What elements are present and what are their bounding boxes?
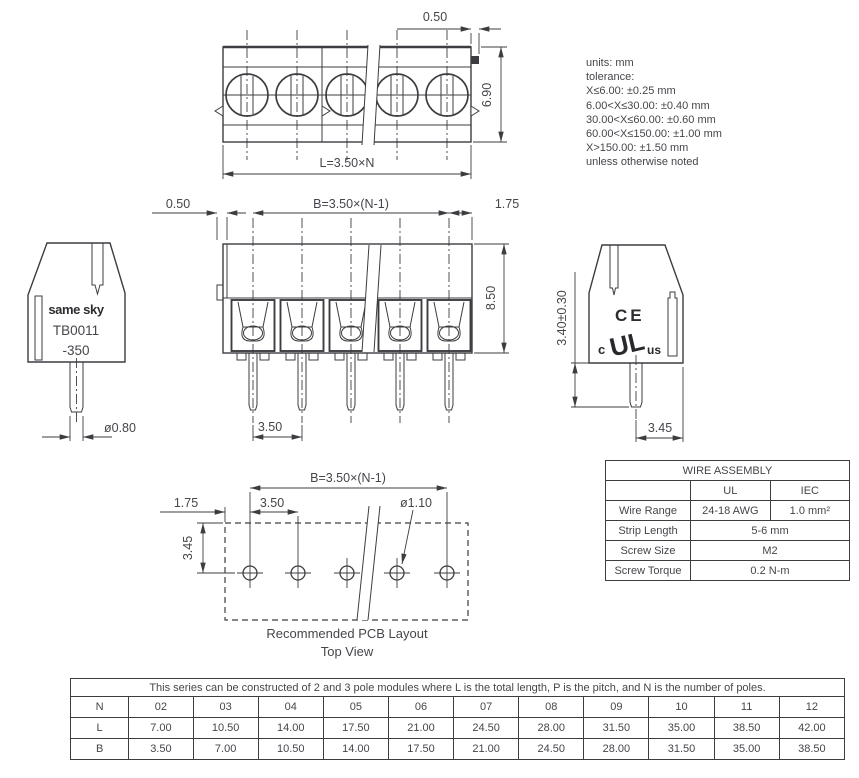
cell: 3.50 <box>129 739 193 760</box>
cell: 03 <box>193 697 258 718</box>
cell: 38.50 <box>779 739 844 760</box>
ul-mark-c: c <box>598 342 605 357</box>
dim-total-length: L=3.50×N <box>320 156 375 170</box>
cell: 11 <box>714 697 779 718</box>
screw-size-value: M2 <box>690 541 849 561</box>
cell: 24.50 <box>519 739 584 760</box>
solder-tab <box>471 56 479 64</box>
cell: 17.50 <box>323 718 388 739</box>
dim-tab-offset: 0.50 <box>423 10 447 24</box>
cell: 10.50 <box>193 718 258 739</box>
cell: 31.50 <box>584 718 649 739</box>
row-label: B <box>71 739 129 760</box>
dim-row-offset: 3.45 <box>181 536 195 560</box>
wire-range-ul: 24-18 AWG <box>690 501 770 521</box>
cell: 35.00 <box>714 739 779 760</box>
datasheet-sheet: { "drawing": { "notes": [ "units: mm", "… <box>0 0 859 778</box>
row-label: L <box>71 718 129 739</box>
note-line: unless otherwise noted <box>586 155 722 169</box>
side-view-right-drawing: CE c UL us 3.40±0.30 3.45 <box>545 228 730 458</box>
wire-table-title: WIRE ASSEMBLY <box>606 461 850 481</box>
dim-pole-span: B=3.50×(N-1) <box>310 471 386 485</box>
row-label: Wire Range <box>606 501 691 521</box>
pin <box>70 358 83 425</box>
pin-diameter-dimension: ø0.80 <box>42 416 136 441</box>
dim-pitch: 3.50 <box>258 420 282 434</box>
pcb-outline <box>225 523 468 620</box>
row-label: Strip Length <box>606 521 691 541</box>
dim-edge-offset: 1.75 <box>174 496 198 510</box>
dim-pole-span: B=3.50×(N-1) <box>313 197 389 211</box>
cell: 21.00 <box>388 718 453 739</box>
note-line: X>150.00: ±1.50 mm <box>586 141 722 155</box>
cell: 10 <box>649 697 714 718</box>
dim-height: 8.50 <box>484 286 498 310</box>
brand-logo: same sky <box>48 302 105 317</box>
cell: 07 <box>454 697 519 718</box>
dim-rear-offset: 3.45 <box>648 421 672 435</box>
cell: 28.00 <box>519 718 584 739</box>
note-line: units: mm <box>586 56 722 70</box>
dim-pitch: 3.50 <box>260 496 284 510</box>
dim-left-offset: 0.50 <box>166 197 190 211</box>
poles-table-caption: This series can be constructed of 2 and … <box>71 679 845 697</box>
cell: 17.50 <box>388 739 453 760</box>
ce-mark: CE <box>615 306 645 325</box>
cell: 10.50 <box>258 739 323 760</box>
ul-mark-us: us <box>647 343 661 357</box>
ul-mark-letters: UL <box>607 325 648 362</box>
note-line: tolerance: <box>586 70 722 84</box>
screw-torque-value: 0.2 N-m <box>690 561 849 581</box>
cell: 05 <box>323 697 388 718</box>
cell: 7.00 <box>129 718 193 739</box>
note-line: 30.00<X≤60.00: ±0.60 mm <box>586 113 722 127</box>
cell: 7.00 <box>193 739 258 760</box>
cell: 35.00 <box>649 718 714 739</box>
rear-offset-dimension: 3.45 <box>636 367 683 442</box>
cell: 02 <box>129 697 193 718</box>
drill-holes <box>237 566 460 580</box>
cell: 09 <box>584 697 649 718</box>
cell: 08 <box>519 697 584 718</box>
front-view-body <box>217 244 472 353</box>
top-view-drawing: 0.50 6.90 L=3.50×N <box>195 2 515 187</box>
note-line: 6.00<X≤30.00: ±0.40 mm <box>586 99 722 113</box>
wire-table-col-iec: IEC <box>770 481 849 501</box>
row-label: Screw Size <box>606 541 691 561</box>
wire-table-col-ul: UL <box>690 481 770 501</box>
table-row: B 3.50 7.00 10.50 14.00 17.50 21.00 24.5… <box>71 739 845 760</box>
table-row: Screw Size M2 <box>606 541 850 561</box>
tolerance-note: units: mm tolerance: X≤6.00: ±0.25 mm 6.… <box>586 56 722 170</box>
cell: 38.50 <box>714 718 779 739</box>
cell: 42.00 <box>779 718 844 739</box>
table-row: Wire Range 24-18 AWG 1.0 mm² <box>606 501 850 521</box>
cell: 21.00 <box>454 739 519 760</box>
pcb-layout-drawing: B=3.50×(N-1) 1.75 3.50 ø1.10 3.45 Recomm… <box>150 462 520 672</box>
row-label: N <box>71 697 129 718</box>
cell: 04 <box>258 697 323 718</box>
dim-depth: 6.90 <box>480 83 494 107</box>
pin <box>630 355 642 420</box>
pcb-dimensions: B=3.50×(N-1) 1.75 3.50 ø1.10 3.45 <box>160 471 447 573</box>
cell: 06 <box>388 697 453 718</box>
pcb-caption-line1: Recommended PCB Layout <box>266 626 428 641</box>
table-row: Strip Length 5-6 mm <box>606 521 850 541</box>
wire-range-iec: 1.0 mm² <box>770 501 849 521</box>
row-label: Screw Torque <box>606 561 691 581</box>
note-line: 60.00<X≤150.00: ±1.00 mm <box>586 127 722 141</box>
break-lines <box>362 45 380 145</box>
cell: 28.00 <box>584 739 649 760</box>
wire-table-empty-cell <box>606 481 691 501</box>
strip-length-value: 5-6 mm <box>690 521 849 541</box>
pcb-caption-line2: Top View <box>321 644 374 659</box>
side-view-left-drawing: same sky TB0011 -350 ø0.80 <box>10 228 225 458</box>
ul-mark: c UL us <box>598 325 661 362</box>
dim-pin-length: 3.40±0.30 <box>555 290 569 346</box>
dim-pin-diameter: ø0.80 <box>104 421 136 435</box>
table-row: L 7.00 10.50 14.00 17.50 21.00 24.50 28.… <box>71 718 845 739</box>
note-line: X≤6.00: ±0.25 mm <box>586 84 722 98</box>
cell: 14.00 <box>258 718 323 739</box>
poles-table: This series can be constructed of 2 and … <box>70 678 845 760</box>
table-row: N 02 03 04 05 06 07 08 09 10 11 12 <box>71 697 845 718</box>
cell: 31.50 <box>649 739 714 760</box>
part-suffix: -350 <box>62 343 89 358</box>
cell: 24.50 <box>454 718 519 739</box>
cell: 14.00 <box>323 739 388 760</box>
part-number: TB0011 <box>53 323 99 338</box>
dim-right-margin: 1.75 <box>495 197 519 211</box>
dim-hole-diameter: ø1.10 <box>400 496 432 510</box>
wire-assembly-table: WIRE ASSEMBLY UL IEC Wire Range 24-18 AW… <box>605 460 850 581</box>
cell: 12 <box>779 697 844 718</box>
wire-poles <box>232 218 471 423</box>
table-row: Screw Torque 0.2 N-m <box>606 561 850 581</box>
